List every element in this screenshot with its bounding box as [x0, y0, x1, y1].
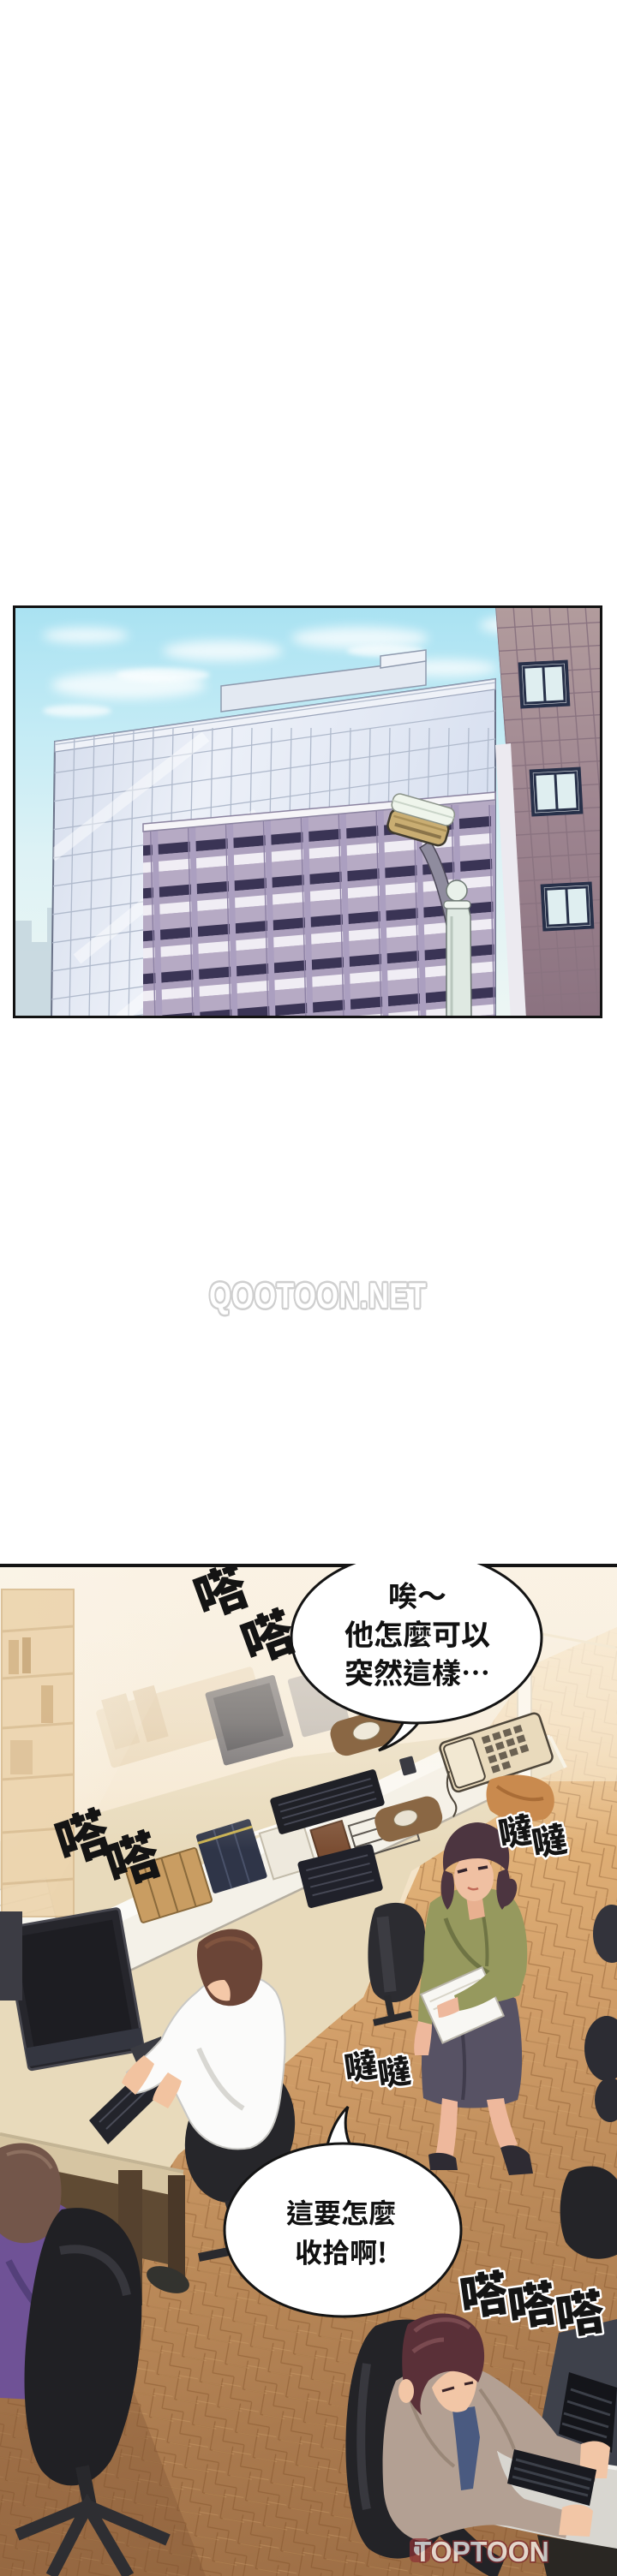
svg-text:TOPTOON: TOPTOON: [415, 2537, 549, 2568]
